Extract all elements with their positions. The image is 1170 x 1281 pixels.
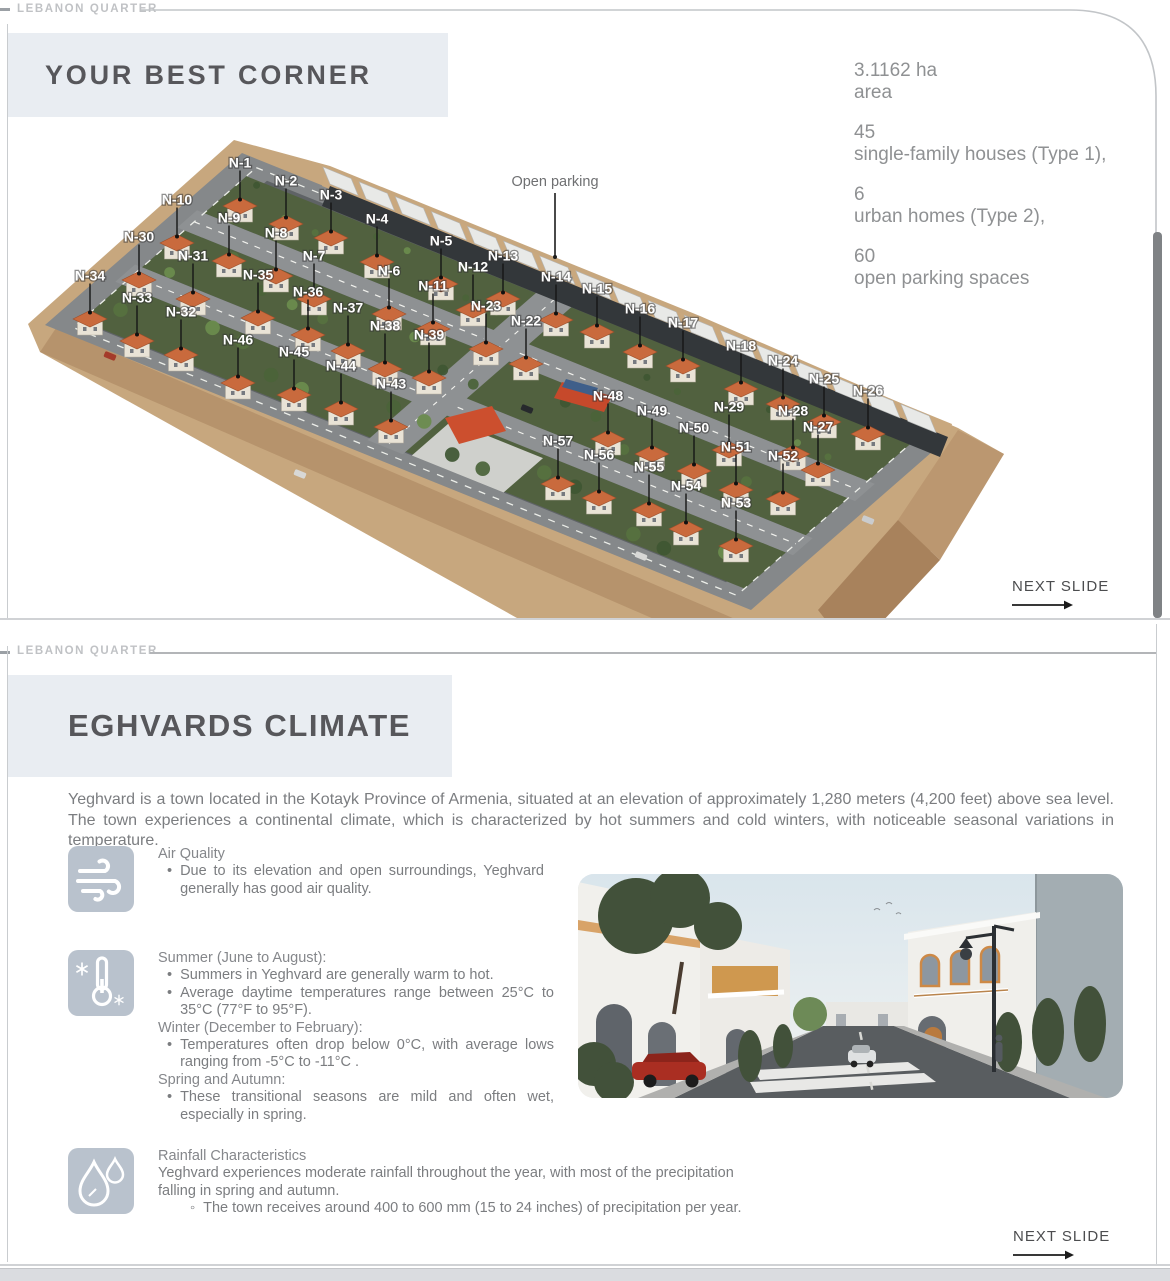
stat-value: 3.1162 ha [854,60,1106,82]
lot-label: N-57 [543,433,574,449]
open-parking-label: Open parking [511,174,598,190]
section-line: ◦The town receives around 400 to 600 mm … [158,1200,774,1217]
stat-area: 3.1162 ha area [854,60,1106,103]
lot-label: N-46 [223,332,254,348]
stat-houses-type1: 45 single-family houses (Type 1), [854,122,1106,165]
section-text: Air Quality•Due to its elevation and ope… [158,846,544,898]
lot-label: N-15 [582,281,613,297]
lot-label: N-38 [370,318,401,334]
section-line: •Temperatures often drop below 0°C, with… [158,1037,554,1072]
lot-label: N-49 [637,403,668,419]
stat-value: 45 [854,122,1106,144]
lot-label: N-17 [668,315,699,331]
stat-label: urban homes (Type 2), [854,206,1106,228]
lot-label: N-9 [218,210,241,226]
lot-label: N-50 [679,420,710,436]
section-heading: Spring and Autumn: [158,1072,554,1089]
lot-label: N-35 [243,267,274,283]
stat-parking: 60 open parking spaces [854,246,1106,289]
stat-label: open parking spaces [854,268,1106,290]
rain-drops-icon [68,1148,134,1214]
stat-homes-type2: 6 urban homes (Type 2), [854,184,1106,227]
slide1-bottom-border [0,618,1170,620]
page: { "colors": { "title-box-bg": "#e9edf2",… [0,0,1170,1280]
slide2-title: EGHVARDS CLIMATE [8,675,452,777]
next-slide-button[interactable]: NEXT SLIDE [1012,578,1162,611]
arrow-right-icon [1012,599,1074,611]
lot-label: N-26 [853,383,884,399]
section-text: Rainfall CharacteristicsYeghvard experie… [158,1148,774,1218]
slide-right-border [1156,624,1157,1264]
lot-label: N-13 [488,248,519,264]
street-photo [578,874,1123,1098]
next-slide-label: NEXT SLIDE [1012,578,1162,595]
lot-label: N-55 [634,459,665,475]
section-heading: Air Quality [158,846,544,863]
lot-label: N-4 [366,211,389,227]
lot-label: N-33 [122,290,153,306]
lot-label: N-25 [809,371,840,387]
stat-value: 6 [854,184,1106,206]
lot-label: N-54 [671,478,702,494]
brand-label: LEBANON QUARTER [17,645,158,657]
lot-label: N-18 [726,338,757,354]
lot-label: N-45 [279,344,310,360]
slide2-title-box: EGHVARDS CLIMATE [8,675,452,777]
stat-value: 60 [854,246,1106,268]
lot-label: N-32 [166,304,197,320]
section-line: •These transitional seasons are mild and… [158,1089,554,1124]
slide-1: LEBANON QUARTER YOUR BEST CORNER N-1N-2N… [0,0,1170,620]
lot-label: N-23 [471,298,502,314]
lot-label: N-37 [333,300,364,316]
lot-label: N-39 [414,327,445,343]
next-slide-label: NEXT SLIDE [1013,1228,1163,1245]
lot-label: N-24 [768,353,799,369]
lot-label: N-22 [511,313,542,329]
lot-label: N-5 [430,233,453,249]
section-line: •Average daytime temperatures range betw… [158,985,554,1020]
page-bottom-bar [0,1268,1170,1281]
lot-label: N-28 [778,403,809,419]
lot-label: N-3 [320,187,343,203]
lot-label: N-36 [293,284,324,300]
lot-label: N-2 [275,173,298,189]
lot-label: N-53 [721,495,752,511]
section-line: •Due to its elevation and open surroundi… [158,863,544,898]
lot-label: N-10 [162,192,193,208]
lot-label: N-56 [584,447,615,463]
lot-label: N-27 [803,419,834,435]
lot-label: N-51 [721,439,752,455]
section-heading: Rainfall Characteristics [158,1148,774,1165]
pedestrian [996,1035,1003,1062]
lot-label: N-14 [541,269,572,285]
arrow-right-icon [1013,1249,1075,1261]
lot-label: N-48 [593,388,624,404]
lot-label: N-30 [124,229,155,245]
lot-label: N-11 [418,278,448,294]
slide2-bottom-border [0,1264,1170,1266]
lot-label: N-1 [229,155,252,171]
lot-label: N-12 [458,259,489,275]
intro-paragraph: Yeghvard is a town located in the Kotayk… [68,790,1114,852]
next-slide-button[interactable]: NEXT SLIDE [1013,1228,1163,1261]
wind-icon [68,846,134,912]
scrollbar-thumb[interactable] [1153,232,1162,618]
section-text: Summer (June to August):•Summers in Yegh… [158,950,554,1124]
lot-label: N-6 [378,263,401,279]
slide-2: LEBANON QUARTER EGHVARDS CLIMATE Yeghvar… [0,622,1170,1268]
brand-line [150,652,1156,654]
lot-label: N-34 [75,268,106,284]
section-heading: Winter (December to February): [158,1020,554,1037]
lot-label: N-52 [768,448,799,464]
stat-label: single-family houses (Type 1), [854,144,1106,166]
lot-label: N-31 [178,248,209,264]
section-line: •Summers in Yeghvard are generally warm … [158,967,554,984]
lot-label: N-44 [326,358,357,374]
lot-label: N-8 [265,225,288,241]
stat-label: area [854,82,1106,104]
lot-label: N-7 [303,248,326,264]
lot-label: N-29 [714,399,745,415]
lot-label: N-43 [376,376,407,392]
section-heading: Summer (June to August): [158,950,554,967]
stats-list: 3.1162 ha area 45 single-family houses (… [854,60,1106,308]
brand-dash [0,651,10,654]
thermometer-icon [68,950,134,1016]
lot-label: N-16 [625,301,656,317]
section-line: Yeghvard experiences moderate rainfall t… [158,1165,774,1200]
